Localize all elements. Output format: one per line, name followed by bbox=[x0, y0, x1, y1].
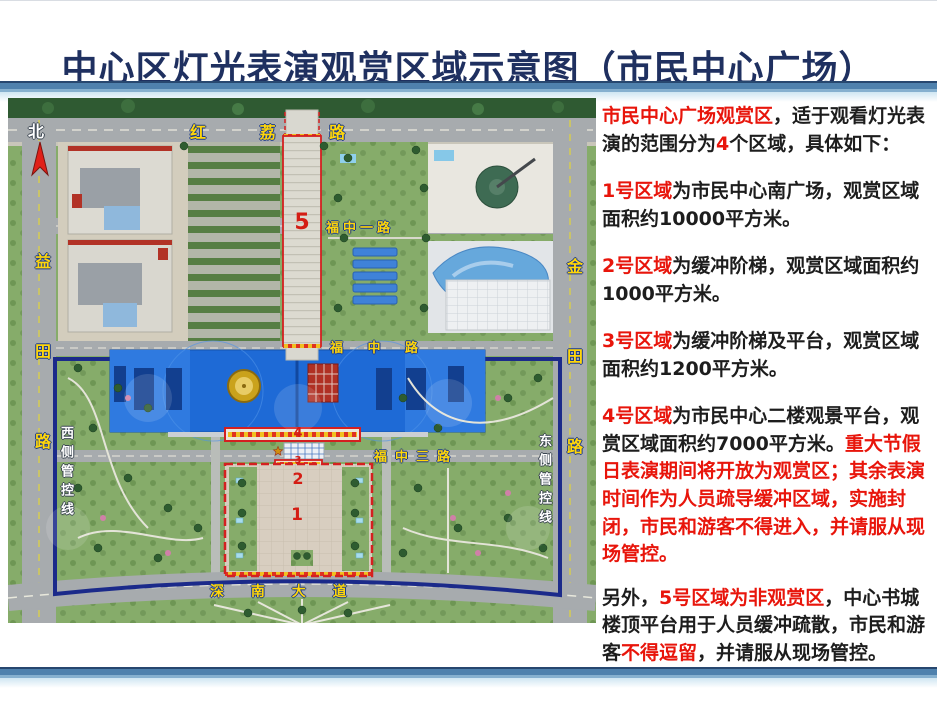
zone-5-area bbox=[283, 136, 321, 346]
text-segment: 不得逗留 bbox=[621, 642, 697, 664]
map-graphic bbox=[8, 98, 596, 623]
paragraph-zone-5: 另外，5号区域为非观赏区，中心书城楼顶平台用于人员缓冲疏散，市民和游客不得逗留，… bbox=[602, 585, 934, 668]
text-segment: ，并请服从现场管控。 bbox=[697, 642, 887, 664]
slide: { "title": "中心区灯光表演观赏区域示意图（市民中心广场）", "ma… bbox=[0, 0, 937, 703]
header-divider-bar bbox=[0, 81, 937, 92]
text-segment: 2号区域 bbox=[602, 255, 672, 277]
description-panel: 市民中心广场观赏区，适于观看灯光表演的范围分为4个区域，具体如下： 1号区域为市… bbox=[602, 103, 934, 687]
northeast-hall-block bbox=[428, 144, 553, 233]
text-segment: 4号区域 bbox=[602, 405, 672, 427]
book-city-building bbox=[283, 110, 321, 360]
text-segment: 市民中心广场观赏区 bbox=[602, 105, 773, 127]
text-segment: 另外， bbox=[602, 587, 659, 609]
paragraph-zone-3: 3号区域为缓冲阶梯及平台，观赏区域面积约1200平方米。 bbox=[602, 328, 934, 383]
west-towers-block bbox=[58, 142, 188, 341]
parking-rows bbox=[188, 142, 280, 341]
text-segment: 个区域，具体如下： bbox=[729, 133, 900, 155]
text-segment: 3号区域 bbox=[602, 330, 672, 352]
text-segment: 5号区域为非观赏区 bbox=[659, 587, 824, 609]
paragraph-zone-4: 4号区域为市民中心二楼观景平台，观赏区域面积约7000平方米。重大节假日表演期间… bbox=[602, 403, 934, 568]
footer-divider-bar bbox=[0, 667, 937, 678]
paragraph-zone-1: 1号区域为市民中心南广场，观赏区域面积约10000平方米。 bbox=[602, 178, 934, 233]
text-segment: 4 bbox=[716, 133, 729, 155]
text-segment: 1号区域 bbox=[602, 180, 672, 202]
paragraph-intro: 市民中心广场观赏区，适于观看灯光表演的范围分为4个区域，具体如下： bbox=[602, 103, 934, 158]
aerial-map: 北 红 荔 路 益田路 金田路 福中一路 福 中 路 福中三路 深 南 大 道 … bbox=[8, 98, 596, 623]
paragraph-zone-2: 2号区域为缓冲阶梯，观赏区域面积约1000平方米。 bbox=[602, 253, 934, 308]
footer-divider-fade bbox=[0, 678, 937, 688]
east-shell-building bbox=[428, 241, 553, 333]
